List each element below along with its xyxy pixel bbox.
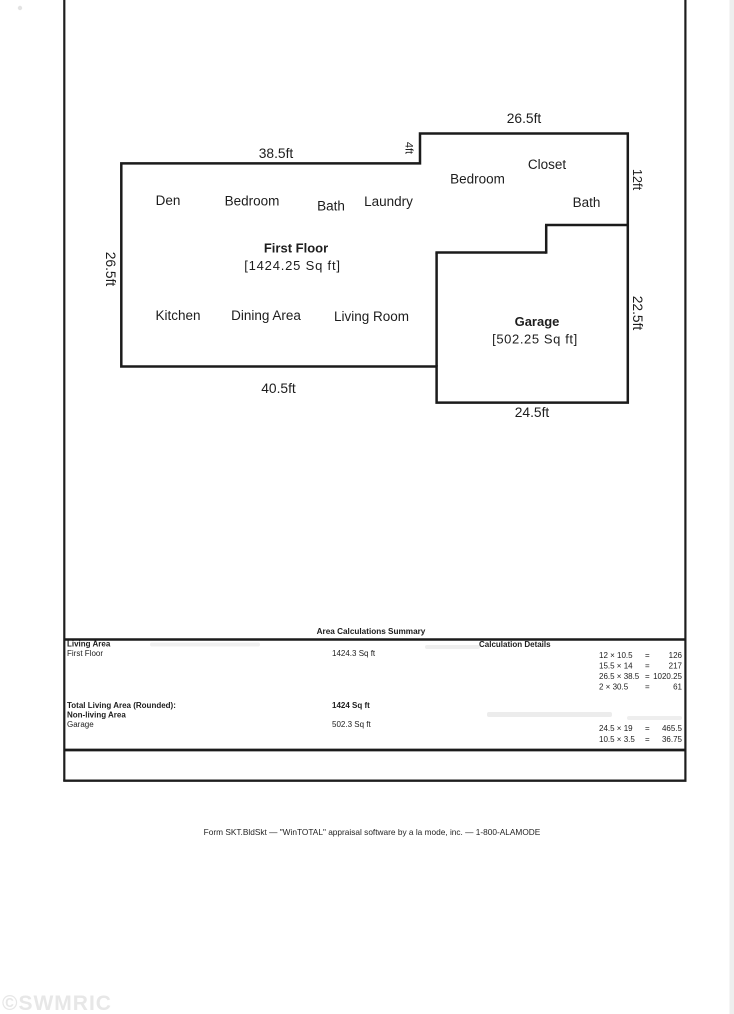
svg-text:61: 61 [673,683,682,692]
svg-text:24.5 × 19: 24.5 × 19 [599,724,633,733]
svg-text:Form SKT.BldSkt — "WinTOTAL" a: Form SKT.BldSkt — "WinTOTAL" appraisal s… [204,827,541,837]
svg-text:=: = [645,672,650,681]
svg-text:36.75: 36.75 [662,735,683,744]
svg-text:Total Living Area (Rounded):: Total Living Area (Rounded): [67,701,176,710]
svg-text:12 × 10.5: 12 × 10.5 [599,651,633,660]
svg-text:15.5 × 14: 15.5 × 14 [599,662,633,671]
svg-text:1424 Sq ft: 1424 Sq ft [332,701,370,710]
svg-text:Bath: Bath [573,195,601,210]
svg-text:Garage: Garage [67,720,94,729]
svg-text:Dining Area: Dining Area [231,308,301,323]
svg-text:Closet: Closet [528,157,567,172]
svg-text:38.5ft: 38.5ft [259,146,294,161]
svg-text:=: = [645,651,650,660]
svg-text:502.3 Sq ft: 502.3 Sq ft [332,720,371,729]
svg-text:[502.25 Sq ft]: [502.25 Sq ft] [492,332,578,347]
svg-text:First Floor: First Floor [67,649,103,658]
svg-text:217: 217 [669,662,683,671]
svg-text:Den: Den [156,193,181,208]
svg-text:465.5: 465.5 [662,724,683,733]
svg-text:Bedroom: Bedroom [450,172,505,187]
svg-text:1020.25: 1020.25 [653,672,682,681]
svg-text:26.5ft: 26.5ft [507,111,542,126]
svg-text:Laundry: Laundry [364,194,413,209]
svg-text:2 × 30.5: 2 × 30.5 [599,683,629,692]
svg-text:=: = [645,662,650,671]
svg-text:Calculation Details: Calculation Details [479,640,551,649]
svg-text:10.5 × 3.5: 10.5 × 3.5 [599,735,635,744]
svg-text:First Floor: First Floor [264,241,328,256]
svg-text:Living Area: Living Area [67,640,111,649]
svg-text:Non-living Area: Non-living Area [67,711,126,720]
svg-text:=: = [645,735,650,744]
svg-text:26.5 × 38.5: 26.5 × 38.5 [599,672,640,681]
svg-text:22.5ft: 22.5ft [630,296,645,331]
svg-text:4ft: 4ft [403,142,415,154]
svg-text:Living Room: Living Room [334,309,409,324]
svg-text:Bath: Bath [317,199,345,214]
svg-text:[1424.25 Sq ft]: [1424.25 Sq ft] [244,258,341,273]
svg-text:40.5ft: 40.5ft [261,381,296,396]
svg-text:24.5ft: 24.5ft [515,405,550,420]
svg-text:Garage: Garage [515,314,560,329]
svg-text:=: = [645,683,650,692]
svg-text:Kitchen: Kitchen [155,308,200,323]
svg-text:12ft: 12ft [630,169,645,191]
svg-text:=: = [645,724,650,733]
svg-text:1424.3 Sq ft: 1424.3 Sq ft [332,649,376,658]
svg-text:©SWMRIC: ©SWMRIC [2,992,112,1014]
svg-text:Bedroom: Bedroom [225,194,280,209]
svg-text:Area Calculations Summary: Area Calculations Summary [317,627,426,636]
svg-text:126: 126 [669,651,683,660]
svg-text:26.5ft: 26.5ft [103,252,118,287]
